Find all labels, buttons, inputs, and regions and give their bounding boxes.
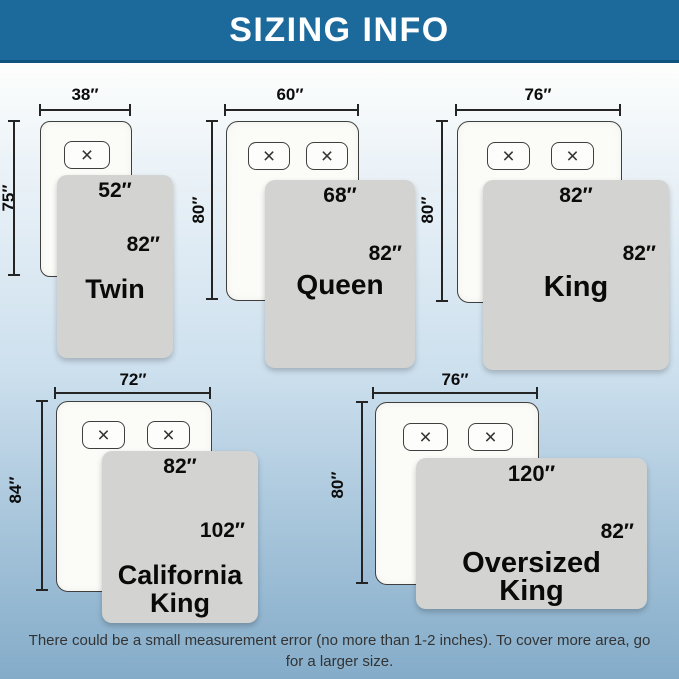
pillow: × <box>248 142 290 170</box>
mattress-length-label: 80″ <box>419 180 437 240</box>
bed-size-name: Oversized King <box>416 549 647 605</box>
pillow-x-icon: × <box>484 427 496 448</box>
pillow-x-icon: × <box>162 425 174 446</box>
bed-size-name: California King <box>102 561 258 617</box>
width-dimension-arrow <box>373 392 537 394</box>
bed-name-line: King <box>102 589 258 617</box>
pillow-x-icon: × <box>502 146 514 167</box>
pillow: × <box>147 421 190 449</box>
width-dimension-arrow <box>40 109 130 111</box>
blanket-width-label: 82″ <box>102 455 258 479</box>
blanket: 82″ 82″ King <box>483 180 669 370</box>
pillow-x-icon: × <box>81 145 93 166</box>
blanket: 68″ 82″ Queen <box>265 180 415 368</box>
pillow: × <box>487 142 530 170</box>
pillow: × <box>306 142 348 170</box>
width-dimension-arrow <box>55 392 210 394</box>
pillow-x-icon: × <box>263 146 275 167</box>
pillow: × <box>551 142 594 170</box>
length-dimension-arrow <box>13 121 15 275</box>
mattress-width-label: 60″ <box>260 85 320 105</box>
blanket-width-label: 82″ <box>483 184 669 208</box>
bed-diagram-queen: 60″ 80″ × × 68″ 82″ Queen <box>195 85 423 380</box>
pillow: × <box>82 421 125 449</box>
mattress-width-label: 72″ <box>103 370 163 390</box>
page-title: SIZING INFO <box>229 11 450 50</box>
length-dimension-arrow <box>361 402 363 583</box>
blanket-length-label: 82″ <box>601 520 634 544</box>
bed-diagram-twin: 38″ 75″ × 52″ 82″ Twin <box>0 85 215 380</box>
length-dimension-arrow <box>441 121 443 301</box>
pillow-x-icon: × <box>419 427 431 448</box>
blanket: 120″ 82″ Oversized King <box>416 458 647 609</box>
mattress-width-label: 76″ <box>508 85 568 105</box>
header-banner: SIZING INFO <box>0 0 679 63</box>
blanket-width-label: 52″ <box>57 179 173 203</box>
bed-size-name: King <box>483 272 669 302</box>
blanket-width-label: 68″ <box>265 184 415 208</box>
blanket: 82″ 102″ California King <box>102 451 258 623</box>
pillow: × <box>468 423 513 451</box>
blanket: 52″ 82″ Twin <box>57 175 173 358</box>
mattress-length-label: 80″ <box>329 455 347 515</box>
bed-size-name: Twin <box>57 275 173 303</box>
mattress-length-label: 80″ <box>190 180 208 240</box>
length-dimension-arrow <box>41 401 43 590</box>
bed-name-line: Oversized <box>416 549 647 577</box>
blanket-length-label: 82″ <box>369 242 402 266</box>
pillow-x-icon: × <box>566 146 578 167</box>
mattress-length-label: 75″ <box>0 168 18 228</box>
bed-name-line: King <box>416 577 647 605</box>
bed-diagram-oversized-king: 76″ 80″ × × 120″ 82″ Oversized King <box>330 370 679 655</box>
width-dimension-arrow <box>225 109 358 111</box>
mattress-width-label: 76″ <box>425 370 485 390</box>
bed-name-line: Queen <box>265 270 415 299</box>
pillow: × <box>64 141 110 169</box>
width-dimension-arrow <box>456 109 620 111</box>
blanket-length-label: 102″ <box>200 519 245 543</box>
mattress-length-label: 84″ <box>7 460 25 520</box>
bed-name-line: King <box>483 272 669 302</box>
blanket-length-label: 82″ <box>127 233 160 257</box>
measurement-note: There could be a small measurement error… <box>22 631 657 672</box>
pillow: × <box>403 423 448 451</box>
bed-size-name: Queen <box>265 270 415 299</box>
blanket-width-label: 120″ <box>416 461 647 487</box>
pillow-x-icon: × <box>321 146 333 167</box>
bed-diagram-king: 76″ 80″ × × 82″ 82″ King <box>420 85 679 380</box>
bed-name-line: California <box>102 561 258 589</box>
length-dimension-arrow <box>211 121 213 299</box>
bed-diagram-california-king: 72″ 84″ × × 82″ 102″ California King <box>0 370 270 655</box>
blanket-length-label: 82″ <box>623 242 656 266</box>
mattress-width-label: 38″ <box>55 85 115 105</box>
bed-name-line: Twin <box>57 275 173 303</box>
pillow-x-icon: × <box>97 425 109 446</box>
